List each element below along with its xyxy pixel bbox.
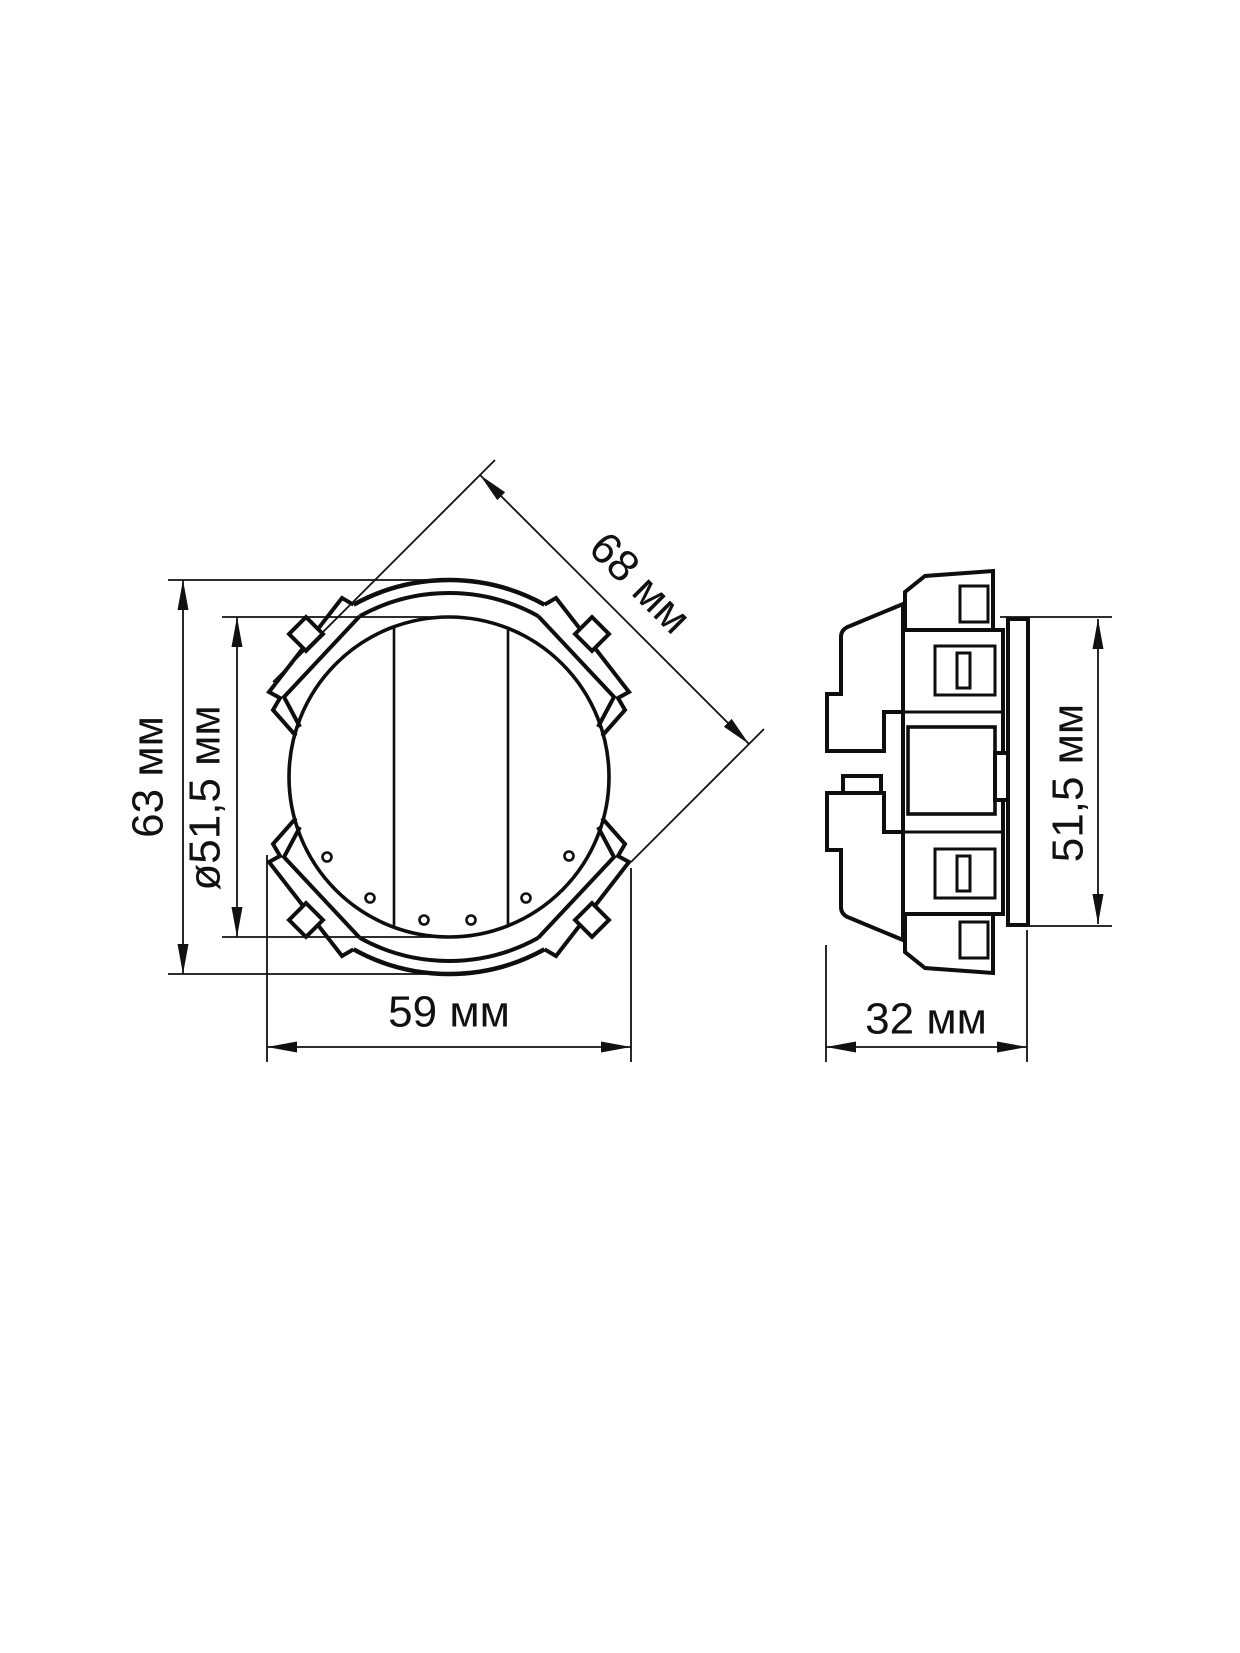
technical-drawing-page: 63 мм ø51,5 мм 59 мм (0, 0, 1240, 1653)
terminal-box-lower (827, 793, 903, 940)
front-view (269, 580, 629, 974)
extension-line (631, 729, 764, 862)
arrowhead (601, 1042, 631, 1053)
dimension-drawing-svg: 63 мм ø51,5 мм 59 мм (0, 0, 1240, 1653)
mounting-claw-sw (269, 818, 360, 956)
bezel-arc-top-inner (360, 593, 538, 616)
dimension-label: 59 мм (388, 988, 510, 1037)
waist-tab (843, 776, 881, 793)
arrowhead (997, 1042, 1027, 1053)
arrowhead (1093, 619, 1104, 649)
arrowhead (178, 580, 189, 610)
bezel-arc-bottom-inner (360, 938, 538, 961)
arrowhead (267, 1042, 297, 1053)
extension-line (273, 460, 495, 682)
dimension-front-width: 59 мм (267, 855, 631, 1062)
arrowhead (232, 617, 243, 647)
dimension-label: 51,5 мм (1044, 704, 1093, 862)
mounting-hole (366, 894, 375, 903)
mounting-hole (467, 916, 476, 925)
dimension-front-diagonal: 68 мм (273, 460, 764, 862)
mounting-claw-se (538, 818, 629, 956)
mounting-hole (323, 853, 332, 862)
mounting-hole (565, 852, 574, 861)
arrowhead (232, 907, 243, 937)
side-view (827, 571, 1028, 973)
dimension-label: ø51,5 мм (181, 705, 230, 890)
mounting-hole (522, 894, 531, 903)
mechanism-body (903, 630, 1003, 914)
dimension-label: 32 мм (865, 995, 987, 1044)
terminal-box-upper (827, 604, 903, 751)
arrowhead (1093, 894, 1104, 924)
mounting-claw-ne (538, 598, 629, 736)
support-plate-edge (1008, 619, 1028, 925)
mounting-hole (420, 916, 429, 925)
mechanism-face-circle (289, 617, 609, 937)
arrowhead (826, 1042, 856, 1053)
mounting-claw-nw (269, 598, 360, 736)
dimension-label: 63 мм (124, 716, 173, 838)
arrowhead (178, 944, 189, 974)
